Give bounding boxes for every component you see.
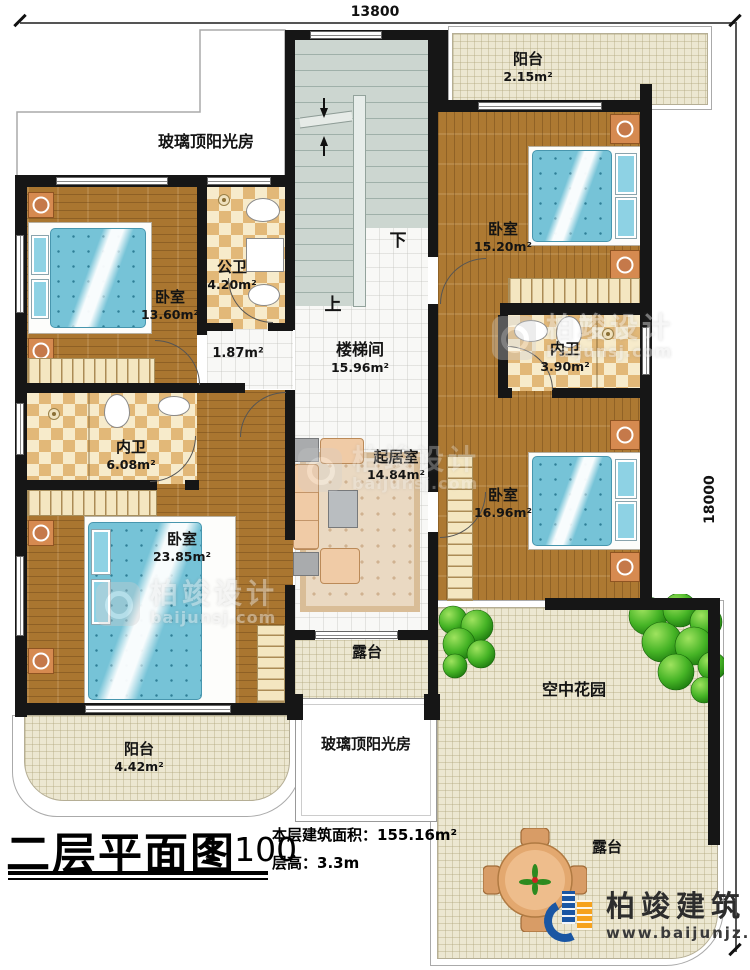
room-label-bedroom-top-right: 卧室 15.20m² [458,220,548,254]
window [207,177,271,185]
watermark-logo-icon [298,448,342,492]
room-label-hallway: 1.87m² [193,346,283,362]
dimension-line-right [735,22,737,952]
toilet-icon [104,394,130,428]
watermark: 柏竣设计 baijunsj.com [298,446,480,493]
room-label-bedroom-left: 卧室 23.85m² [137,530,227,564]
stairs-up-label: 上 [320,295,346,316]
bed-pillow [32,236,48,274]
wall [268,323,293,331]
wall [640,84,652,315]
nightstand [28,520,54,546]
coffee-table [328,490,358,528]
window [16,556,24,636]
stair-break-arrows [298,96,356,160]
room-label-terrace-mid: 露台 [337,643,397,662]
bed-pillow [616,502,636,540]
wall [398,630,433,640]
wall [287,694,303,720]
wall [424,694,440,720]
wardrobe [27,358,155,384]
nightstand [610,114,640,144]
floor-area-info: 本层建筑面积：155.16m² [272,824,457,845]
window [478,102,602,110]
floor-plan: 13800 18000 [0,0,750,970]
watermark: 柏竣设计 baijunsj.com [96,580,278,627]
window [315,631,398,639]
title-underline [8,871,268,875]
sink-icon [158,396,190,416]
wall [545,598,720,610]
room-label-terrace-garden: 露台 [577,838,637,857]
drain-icon [48,408,60,420]
wall [428,30,438,235]
room-label-sky-garden: 空中花园 [514,680,634,700]
wall [285,630,315,640]
wall [428,532,438,610]
drain-icon [218,194,230,206]
dimension-width-label: 13800 [340,4,410,20]
company-name: 柏竣建筑 [606,890,750,923]
wall [428,235,438,257]
window [85,705,231,713]
watermark: 柏竣设计 baijunsj.com [492,314,674,361]
wall [197,383,245,393]
floor-height-info: 层高：3.3m [272,852,359,873]
company-logo-icon [544,886,598,946]
wall [207,323,233,331]
dimension-line-top [20,22,736,24]
wall [185,480,199,490]
bed-pillow [616,460,636,498]
window [16,235,24,313]
room-label-bath-public: 公卫 4.20m² [187,258,277,292]
wardrobe [508,278,640,304]
room-label-stairwell: 楼梯间 15.96m² [315,340,405,376]
watermark-logo-icon [492,316,536,360]
wardrobe [27,490,157,516]
toilet-icon [246,198,280,222]
sunroom-top-outline [15,26,289,186]
sofa-armrest [293,552,319,576]
nightstand [610,420,640,450]
window [16,403,24,455]
wardrobe [257,625,285,703]
wall [15,480,157,490]
wall [428,610,438,695]
watermark-logo-icon [96,582,140,626]
dimension-height-label: 18000 [702,460,720,540]
bed-pillow [92,530,110,574]
wall [708,610,720,845]
nightstand [610,552,640,582]
wall [285,30,295,330]
nightstand [28,648,54,674]
nightstand [28,192,54,218]
room-label-balcony-bottom: 阳台 4.42m² [94,740,184,774]
tree-icon [433,604,507,694]
title-underline [8,878,268,880]
stairs-down-label: 下 [385,231,411,252]
nightstand [610,250,640,280]
company-logo: 柏竣建筑 www.baijunjz.com [544,886,750,946]
window [56,177,168,185]
room-label-bath-ensuite-left: 内卫 6.08m² [86,438,176,472]
window [310,31,382,39]
wall [285,390,295,540]
room-label-balcony-top: 阳台 2.15m² [483,50,573,84]
sunroom-bottom-inner [301,704,431,816]
company-site: www.baijunjz.com [606,924,750,942]
bed-pillow [616,198,636,238]
room-label-sunroom-top: 玻璃顶阳光房 [146,132,266,152]
wall [552,388,652,398]
bed-pillow [32,280,48,318]
room-label-sunroom-bottom: 玻璃顶阳光房 [301,735,431,754]
armchair [320,548,360,584]
room-label-bedroom-top-left: 卧室 13.60m² [125,288,215,322]
bed-pillow [616,154,636,194]
